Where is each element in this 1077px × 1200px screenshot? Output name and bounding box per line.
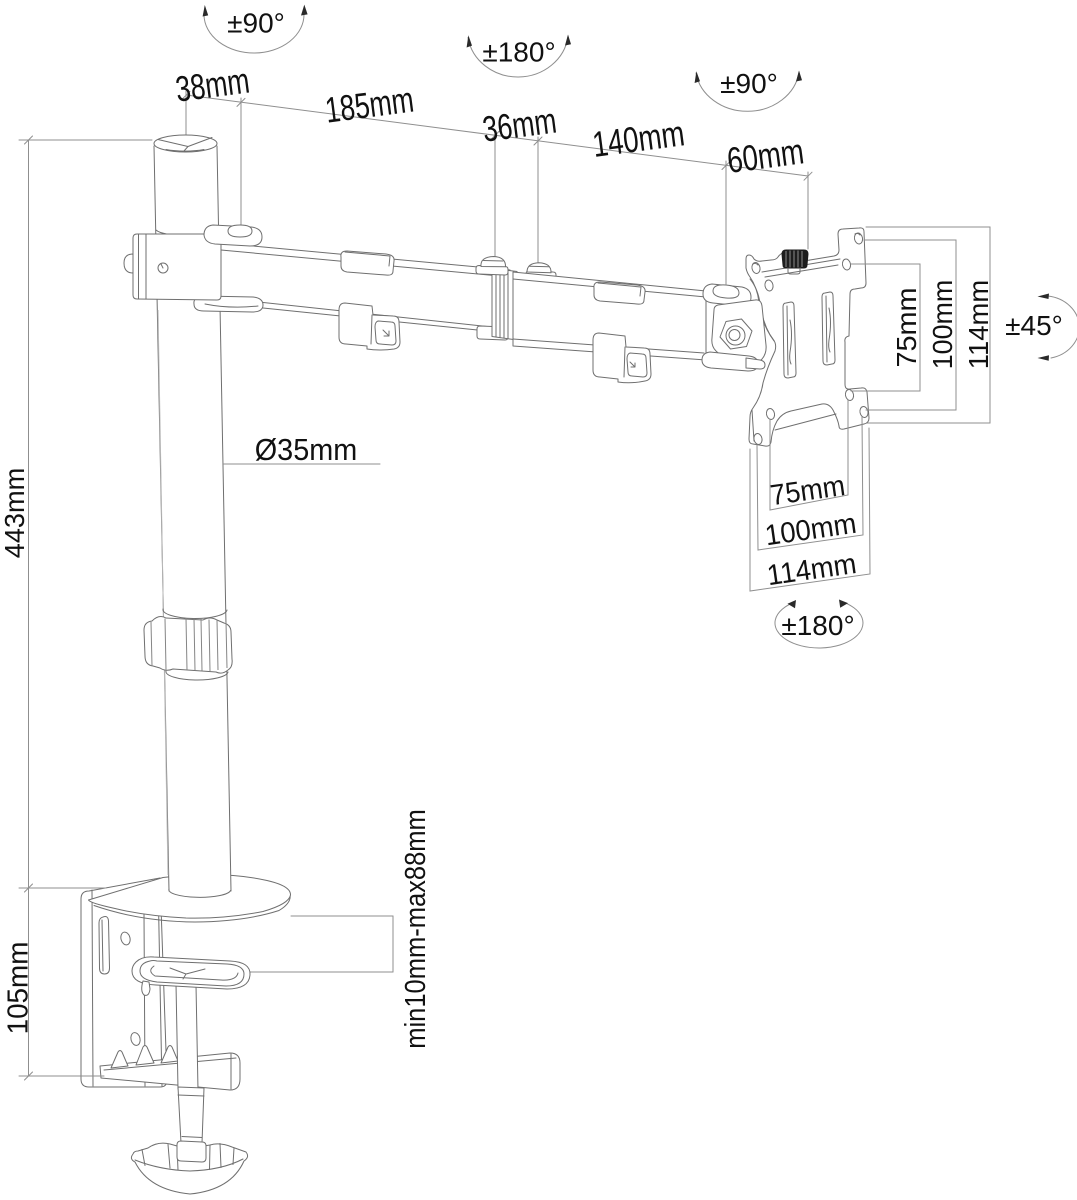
svg-text:±90°: ±90° bbox=[227, 8, 285, 39]
svg-text:140mm: 140mm bbox=[590, 113, 687, 165]
svg-text:100mm: 100mm bbox=[926, 280, 958, 370]
svg-text:±180°: ±180° bbox=[482, 37, 555, 68]
svg-text:60mm: 60mm bbox=[725, 131, 807, 181]
svg-text:114mm: 114mm bbox=[963, 280, 994, 369]
svg-text:75mm: 75mm bbox=[768, 469, 847, 511]
svg-text:Ø35mm: Ø35mm bbox=[255, 433, 357, 467]
svg-text:75mm: 75mm bbox=[891, 287, 923, 367]
svg-text:±45°: ±45° bbox=[1005, 310, 1063, 341]
svg-text:100mm: 100mm bbox=[763, 506, 858, 551]
svg-text:443mm: 443mm bbox=[0, 468, 30, 559]
svg-text:±180°: ±180° bbox=[781, 610, 854, 641]
svg-text:114mm: 114mm bbox=[765, 546, 858, 591]
svg-text:min10mm-max88mm: min10mm-max88mm bbox=[398, 809, 431, 1048]
svg-text:105mm: 105mm bbox=[2, 942, 35, 1035]
svg-text:±90°: ±90° bbox=[720, 68, 778, 99]
